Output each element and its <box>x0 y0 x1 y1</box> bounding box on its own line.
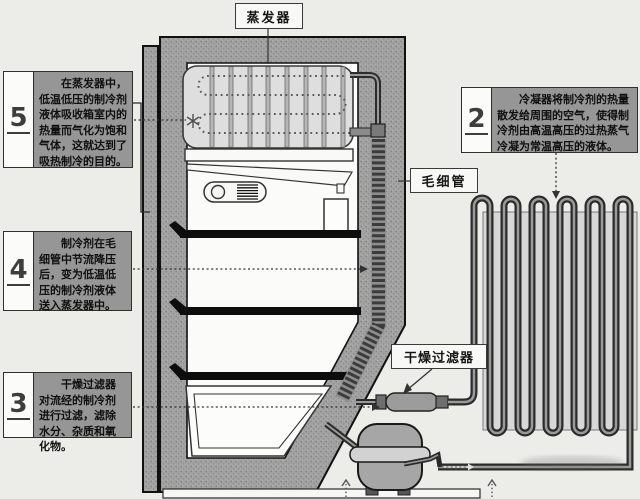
leader-arrow-filter-label <box>403 369 432 394</box>
callout-5-number: 5 <box>7 105 29 134</box>
callout-2-number: 2 <box>465 106 487 135</box>
callout-step-5: 5 在蒸发器中，低温低压的制冷剂液体吸收箱室内的热量而气化为饱和气体，这就达到了… <box>3 71 133 168</box>
callout-3-text: 干燥过滤器对流经的制冷剂进行过滤，滤除水分、杂质和氧化物。 <box>34 373 131 437</box>
condenser-serpentine <box>438 198 630 467</box>
base-plate <box>163 489 480 498</box>
lamp-bulb <box>212 186 225 199</box>
scan-smudge <box>520 456 624 470</box>
thermostat-box <box>324 199 348 233</box>
callout-5-text: 在蒸发器中，低温低压的制冷剂液体吸收箱室内的热量而气化为饱和气体，这就达到了吸热… <box>34 72 132 167</box>
label-evaporator-text: 蒸发器 <box>246 7 291 26</box>
filter-drier <box>356 393 448 411</box>
label-capillary: 毛细管 <box>410 168 478 193</box>
filter-body <box>386 393 438 411</box>
callout-4-text: 制冷剂在毛细管中节流降压后，变为低温低压的制冷剂液体送入蒸发器中。 <box>34 232 131 310</box>
callout-step-3: 3 干燥过滤器对流经的制冷剂进行过滤，滤除水分、杂质和氧化物。 <box>3 372 132 438</box>
callout-4-number-cell: 4 <box>4 232 34 310</box>
interior-lamp <box>204 182 266 202</box>
callout-step-2: 2 冷凝器将制冷剂的热量散发给周围的空气，使得制冷剂由高温高压的过热蒸气冷凝为常… <box>461 87 638 153</box>
callout-3-number-cell: 3 <box>4 373 34 437</box>
callout-3-number: 3 <box>7 391 29 420</box>
pipe-union-nut <box>371 124 385 137</box>
label-evaporator: 蒸发器 <box>235 3 303 29</box>
flow-arrow-up-right <box>488 480 496 497</box>
refrigeration-cycle-diagram: 蒸发器 毛细管 干燥过滤器 5 在蒸发器中，低温低压的制冷剂液体吸收箱室内的热量… <box>0 0 640 499</box>
callout-2-text: 冷凝器将制冷剂的热量散发给周围的空气，使得制冷剂由高温高压的过热蒸气冷凝为常温高… <box>492 88 637 152</box>
evaporator <box>183 66 353 148</box>
fridge-door <box>143 46 158 492</box>
filter-outlet-nut <box>436 396 448 408</box>
callout-5-number-cell: 5 <box>4 72 34 167</box>
callout-4-number: 4 <box>7 257 29 286</box>
callout-step-4: 4 制冷剂在毛细管中节流降压后，变为低温低压的制冷剂液体送入蒸发器中。 <box>3 231 132 311</box>
label-filter-drier-text: 干燥过滤器 <box>404 347 474 366</box>
label-capillary-text: 毛细管 <box>421 171 466 190</box>
dashed-line-callout-2 <box>552 153 560 199</box>
callout-2-number-cell: 2 <box>462 88 492 152</box>
label-filter-drier: 干燥过滤器 <box>391 344 487 369</box>
evaporator-side-fitting <box>350 128 371 136</box>
